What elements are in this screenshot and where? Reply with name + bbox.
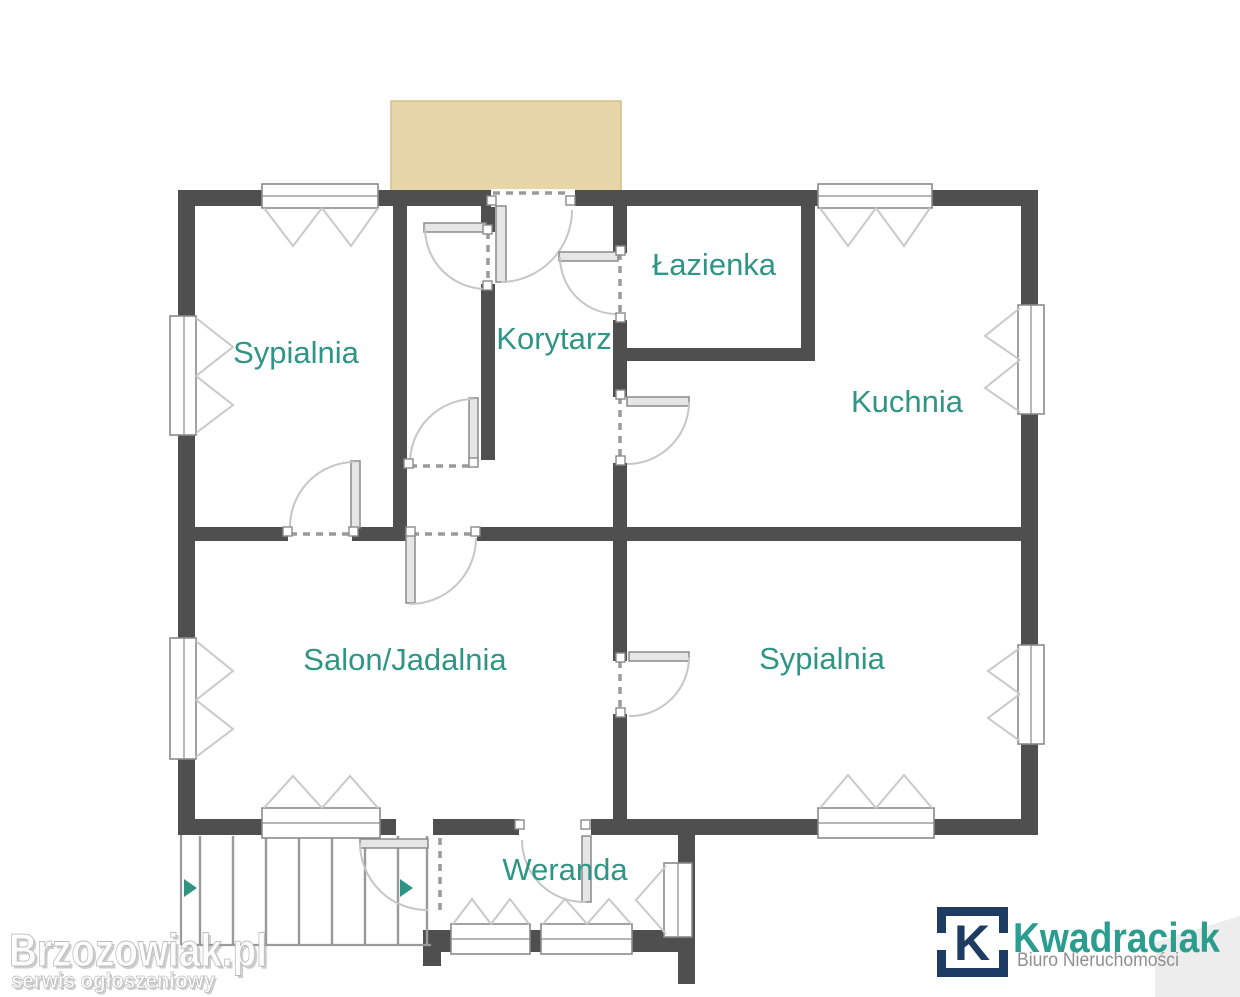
door-bathroom [559, 252, 618, 314]
window-living-bottom [262, 776, 380, 838]
logo-frame-notch-right [999, 933, 1008, 950]
door-jambs [283, 196, 625, 829]
watermark: Brzozowiak.pl Brzozowiak.pl serwis ogłos… [9, 924, 270, 995]
room-label-corridor: Korytarz [496, 321, 611, 356]
room-label-bathroom: Łazienka [652, 247, 777, 282]
door-closet-top [424, 223, 486, 289]
door-closet-bottom [410, 398, 478, 463]
room-label-living: Salon/Jadalnia [303, 642, 507, 677]
window-bedroom2-bottom [818, 775, 934, 838]
room-label-kitchen: Kuchnia [851, 384, 964, 419]
room-label-bedroom2: Sypialnia [759, 641, 886, 676]
door-bedroom1 [290, 461, 360, 528]
window-bedroom2-right [988, 645, 1044, 744]
door-kitchen [627, 397, 689, 464]
room-label-bedroom1: Sypialnia [233, 335, 360, 370]
window-living-left [170, 638, 233, 759]
brand-logo: K Kwadraciak Biuro Nieruchomości [937, 907, 1221, 977]
window-veranda-right [636, 863, 692, 937]
window-bedroom1-left [170, 316, 233, 435]
logo-frame-notch-left [937, 933, 946, 950]
room-label-veranda: Weranda [502, 852, 628, 887]
door-stairs [360, 839, 428, 910]
stair-direction-arrow [184, 879, 197, 897]
logo-initial: K [954, 915, 990, 971]
window-veranda-bottom-right [541, 899, 632, 954]
floor-plan-drawing: Sypialnia Korytarz Łazienka Kuchnia Salo… [0, 0, 1240, 997]
window-veranda-bottom-left [451, 899, 530, 954]
door-living [406, 534, 476, 604]
stair-direction-arrow [400, 879, 413, 897]
window-kitchen-top [818, 184, 932, 246]
floor-plan-page: Sypialnia Korytarz Łazienka Kuchnia Salo… [0, 0, 1240, 997]
window-bedroom1-top [262, 184, 378, 246]
watermark-subtitle: serwis ogłoszeniowy [11, 968, 216, 993]
window-kitchen-right [985, 305, 1044, 414]
door-bedroom2 [629, 652, 689, 716]
dashed-openings [290, 193, 620, 912]
logo-tagline: Biuro Nieruchomości [1017, 950, 1179, 971]
terrace-slab [391, 101, 621, 191]
